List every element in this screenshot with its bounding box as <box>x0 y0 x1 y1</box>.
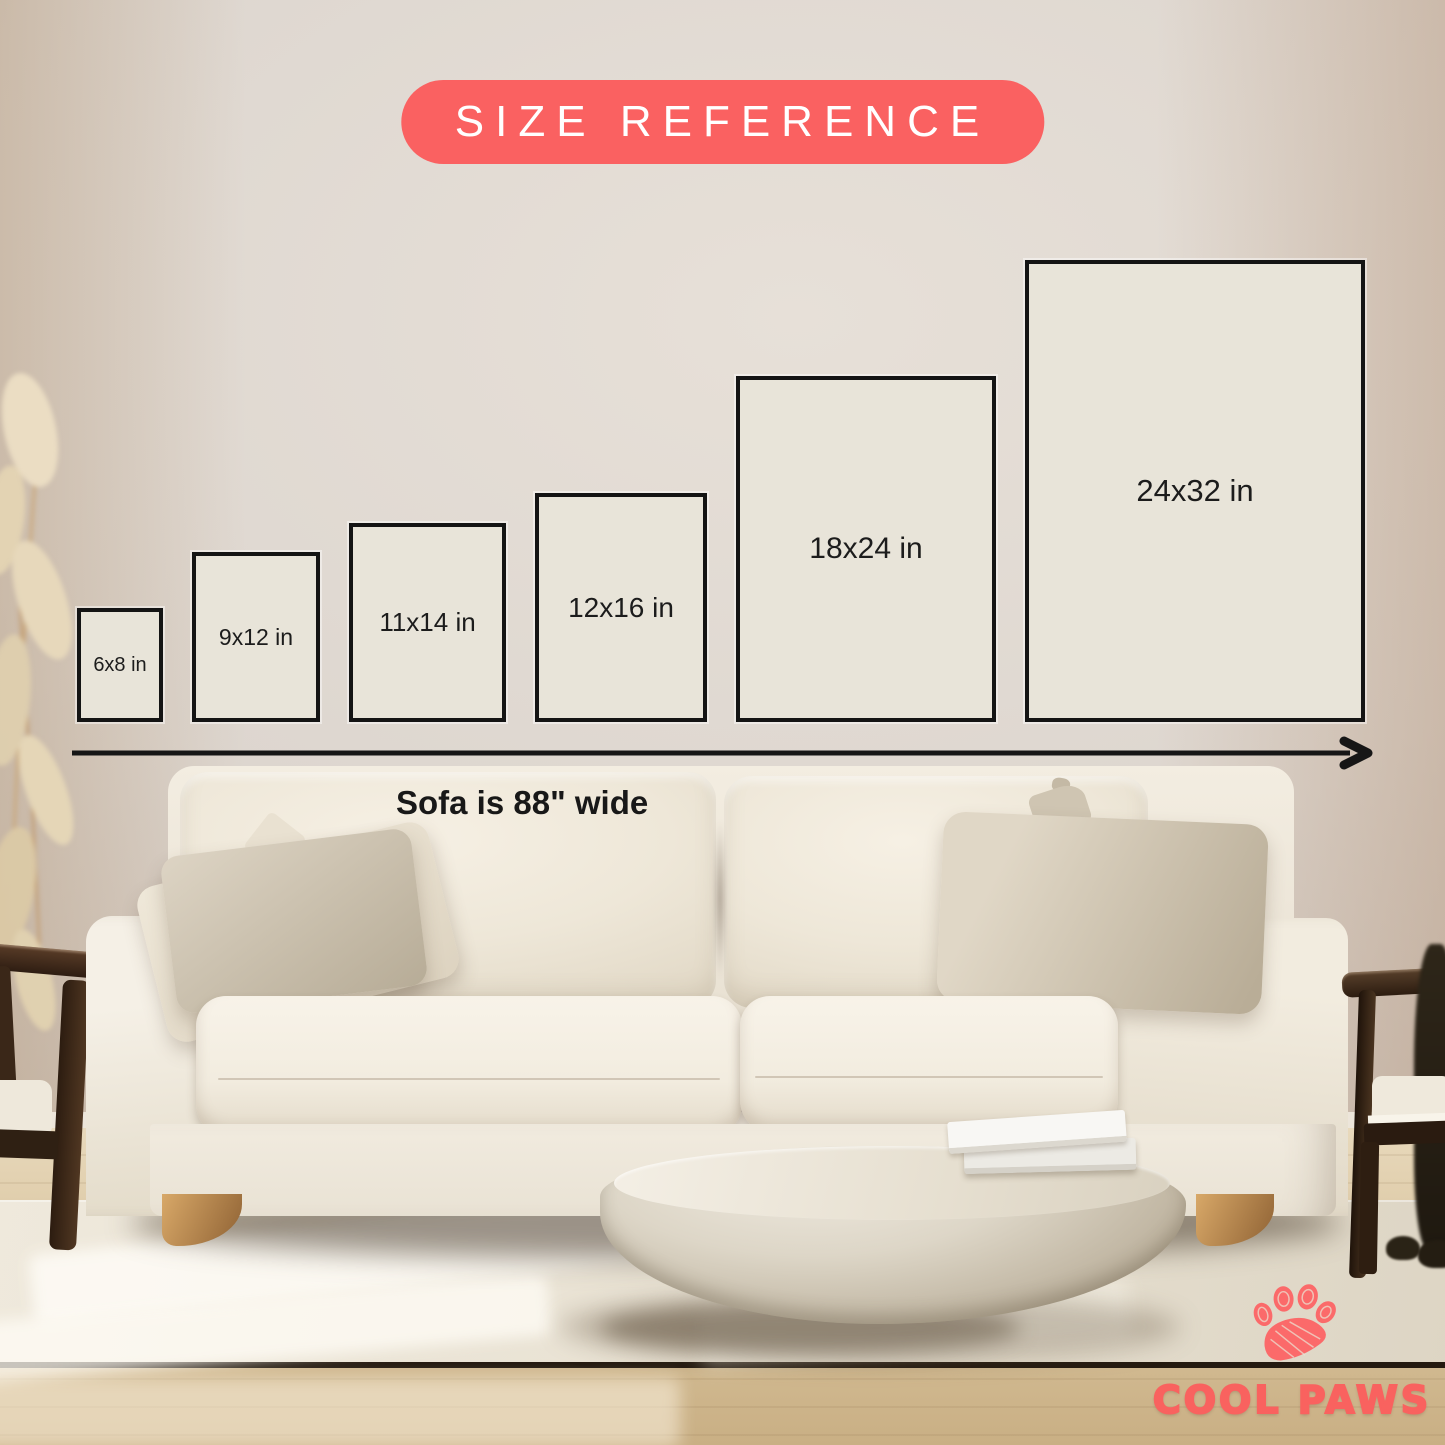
size-frame-6x8: 6x8 in <box>77 608 163 722</box>
pillow <box>936 811 1269 1015</box>
size-frame-label: 24x32 in <box>1136 473 1253 509</box>
sofa-cushion-gap <box>712 792 728 1006</box>
cat-paw <box>1386 1236 1420 1260</box>
size-frames: 6x8 in 9x12 in 11x14 in 12x16 in 18x24 i… <box>77 260 1365 722</box>
size-frame-9x12: 9x12 in <box>192 552 320 722</box>
brand-name: COOL PAWS <box>1152 1378 1432 1422</box>
size-frame-label: 6x8 in <box>93 654 146 677</box>
right-armchair <box>1359 1142 1379 1274</box>
cat-paw <box>1418 1240 1445 1268</box>
pillow <box>159 827 428 1015</box>
size-reference-badge: SIZE REFERENCE <box>401 80 1044 164</box>
left-armchair <box>0 1129 58 1160</box>
size-frame-11x14: 11x14 in <box>349 523 506 722</box>
size-frame-label: 9x12 in <box>219 624 293 651</box>
size-frame-12x16: 12x16 in <box>535 493 707 722</box>
size-frame-label: 18x24 in <box>809 532 922 566</box>
sofa-width-caption: Sofa is 88" wide <box>396 784 648 822</box>
size-frame-label: 12x16 in <box>568 592 674 624</box>
width-arrow-icon <box>66 736 1386 770</box>
size-frame-18x24: 18x24 in <box>736 376 996 722</box>
paw-icon <box>1242 1278 1342 1370</box>
size-frame-label: 11x14 in <box>379 607 475 638</box>
size-frame-24x32: 24x32 in <box>1025 260 1365 722</box>
right-armchair-cushion <box>1372 1076 1445 1118</box>
sunlight-patch <box>0 1378 680 1445</box>
sofa-seat-cushion <box>196 996 742 1138</box>
size-reference-image: SIZE REFERENCE 6x8 in 9x12 in 11x14 in 1… <box>0 0 1445 1445</box>
